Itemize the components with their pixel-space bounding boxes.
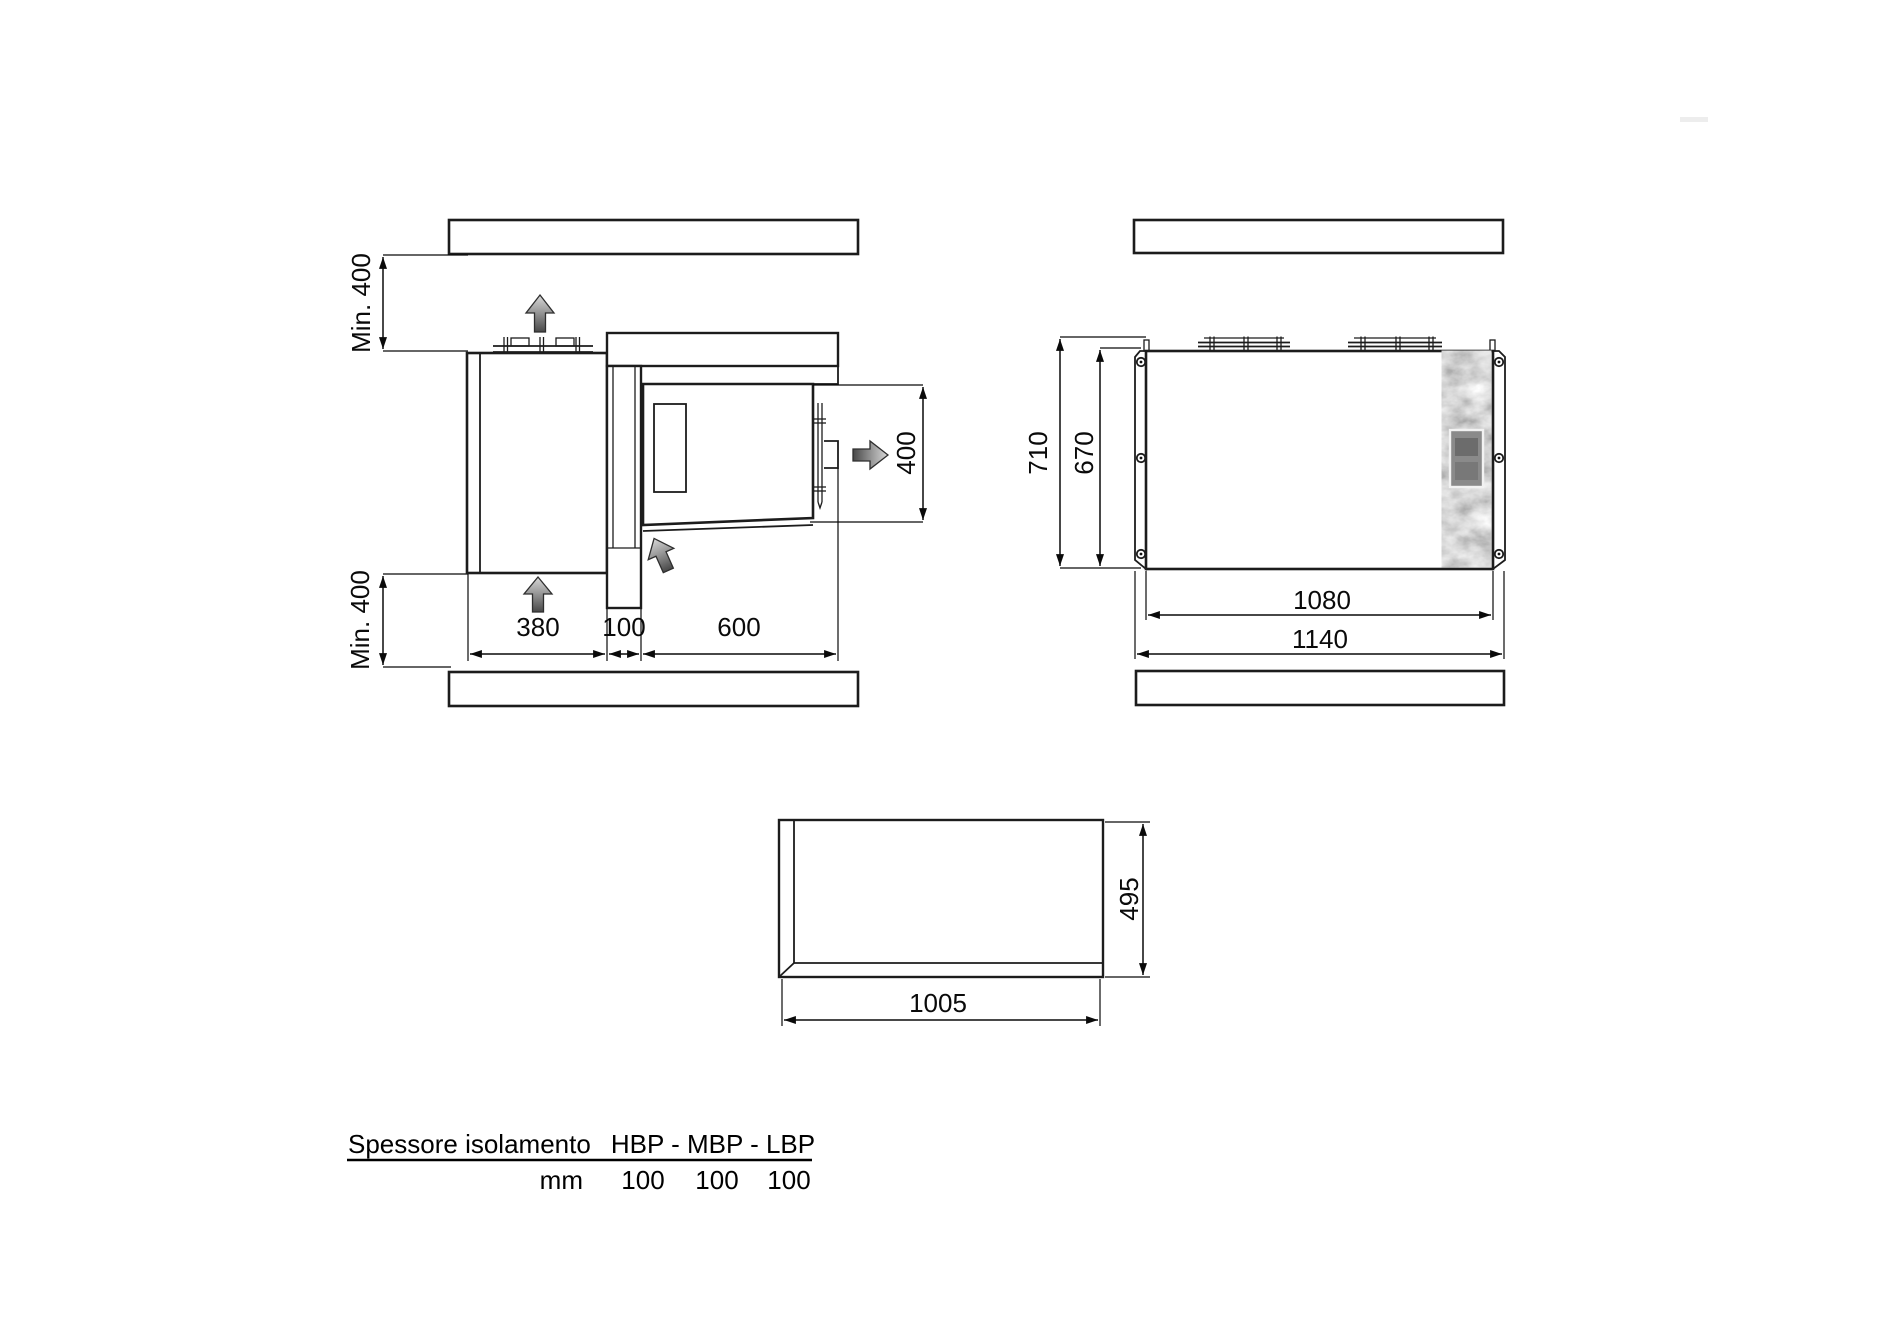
dimension-cutout-width: 1005 (782, 979, 1100, 1026)
table-value-mbp: 100 (695, 1165, 738, 1195)
cutout-view-diagram: 1005 495 (779, 820, 1150, 1026)
screw-dot (1140, 457, 1143, 460)
table-value-hbp: 100 (621, 1165, 664, 1195)
condenser-unit (467, 353, 607, 573)
unit-front-panel (1146, 351, 1493, 569)
grille-slot (556, 338, 574, 346)
wall-section-bottom (449, 672, 858, 706)
flange-pin (1144, 340, 1149, 351)
faint-artifact (1680, 117, 1708, 122)
room-depth-label: 600 (717, 612, 760, 642)
screw-dot (1498, 361, 1501, 364)
wall-section-top (1134, 220, 1503, 253)
insulation-table: Spessore isolamento HBP - MBP - LBP mm 1… (347, 1129, 815, 1195)
screw-dot (1140, 361, 1143, 364)
wall-thickness-label: 100 (602, 612, 645, 642)
texture-detail (1455, 438, 1478, 456)
partition-wall-section (607, 366, 641, 608)
drip-tray-line (643, 525, 813, 531)
front-view-diagram: 710 670 1080 1140 (1023, 220, 1505, 705)
overall-height-label: 710 (1023, 431, 1053, 474)
wall-section-bottom (1136, 671, 1504, 705)
top-view-diagram: Min. 400 Min. 400 (345, 220, 923, 706)
dimension-cutout-height: 495 (1105, 822, 1150, 977)
airflow-out-arrow-icon (853, 441, 888, 469)
airflow-up-arrow-icon (526, 295, 554, 332)
overall-width-label: 1140 (1292, 624, 1348, 654)
coil-junction-box (824, 441, 838, 468)
table-row-header: Spessore isolamento (348, 1129, 591, 1159)
room-wall-outer-bar (607, 333, 838, 366)
table-col-header: HBP - MBP - LBP (611, 1129, 815, 1159)
evaporator-unit (643, 384, 813, 525)
wall-section-top (449, 220, 858, 254)
table-value-lbp: 100 (767, 1165, 810, 1195)
cutout-height-label: 495 (1114, 877, 1144, 920)
body-width-label: 1080 (1293, 585, 1351, 615)
evaporator-coil (814, 403, 838, 508)
clearance-bottom-label: Min. 400 (345, 570, 375, 670)
top-grille-right (1348, 337, 1442, 351)
airflow-intake-arrow-icon (524, 577, 552, 612)
dimension-body-width: 1080 (1146, 571, 1493, 620)
texture-detail (1455, 462, 1478, 480)
unit-width-label: 400 (891, 431, 921, 474)
dimension-clearance-bottom: Min. 400 (345, 570, 468, 670)
flange-pin (1490, 340, 1495, 351)
dimension-clearance-top: Min. 400 (346, 253, 468, 353)
table-unit-label: mm (540, 1165, 583, 1195)
screw-dot (1498, 457, 1501, 460)
screw-dot (1140, 553, 1143, 556)
technical-drawing-page: Min. 400 Min. 400 (0, 0, 1890, 1336)
cutout-width-label: 1005 (909, 988, 967, 1018)
screw-dot (1498, 553, 1501, 556)
condenser-depth-label: 380 (516, 612, 559, 642)
condenser-grille (493, 337, 593, 353)
condensing-unit-texture (1444, 355, 1489, 563)
dimension-body-height: 670 (1069, 348, 1141, 566)
airflow-evaporator-arrow-icon (641, 533, 681, 576)
coil-tip (818, 502, 822, 508)
body-height-label: 670 (1069, 431, 1099, 474)
room-wall-inner-bar (640, 366, 838, 384)
top-grille-left (1198, 337, 1290, 351)
cutout-outline (779, 820, 1103, 977)
grille-slot (511, 338, 529, 346)
clearance-top-label: Min. 400 (346, 253, 376, 353)
installation-drawing: Min. 400 Min. 400 (0, 0, 1890, 1336)
